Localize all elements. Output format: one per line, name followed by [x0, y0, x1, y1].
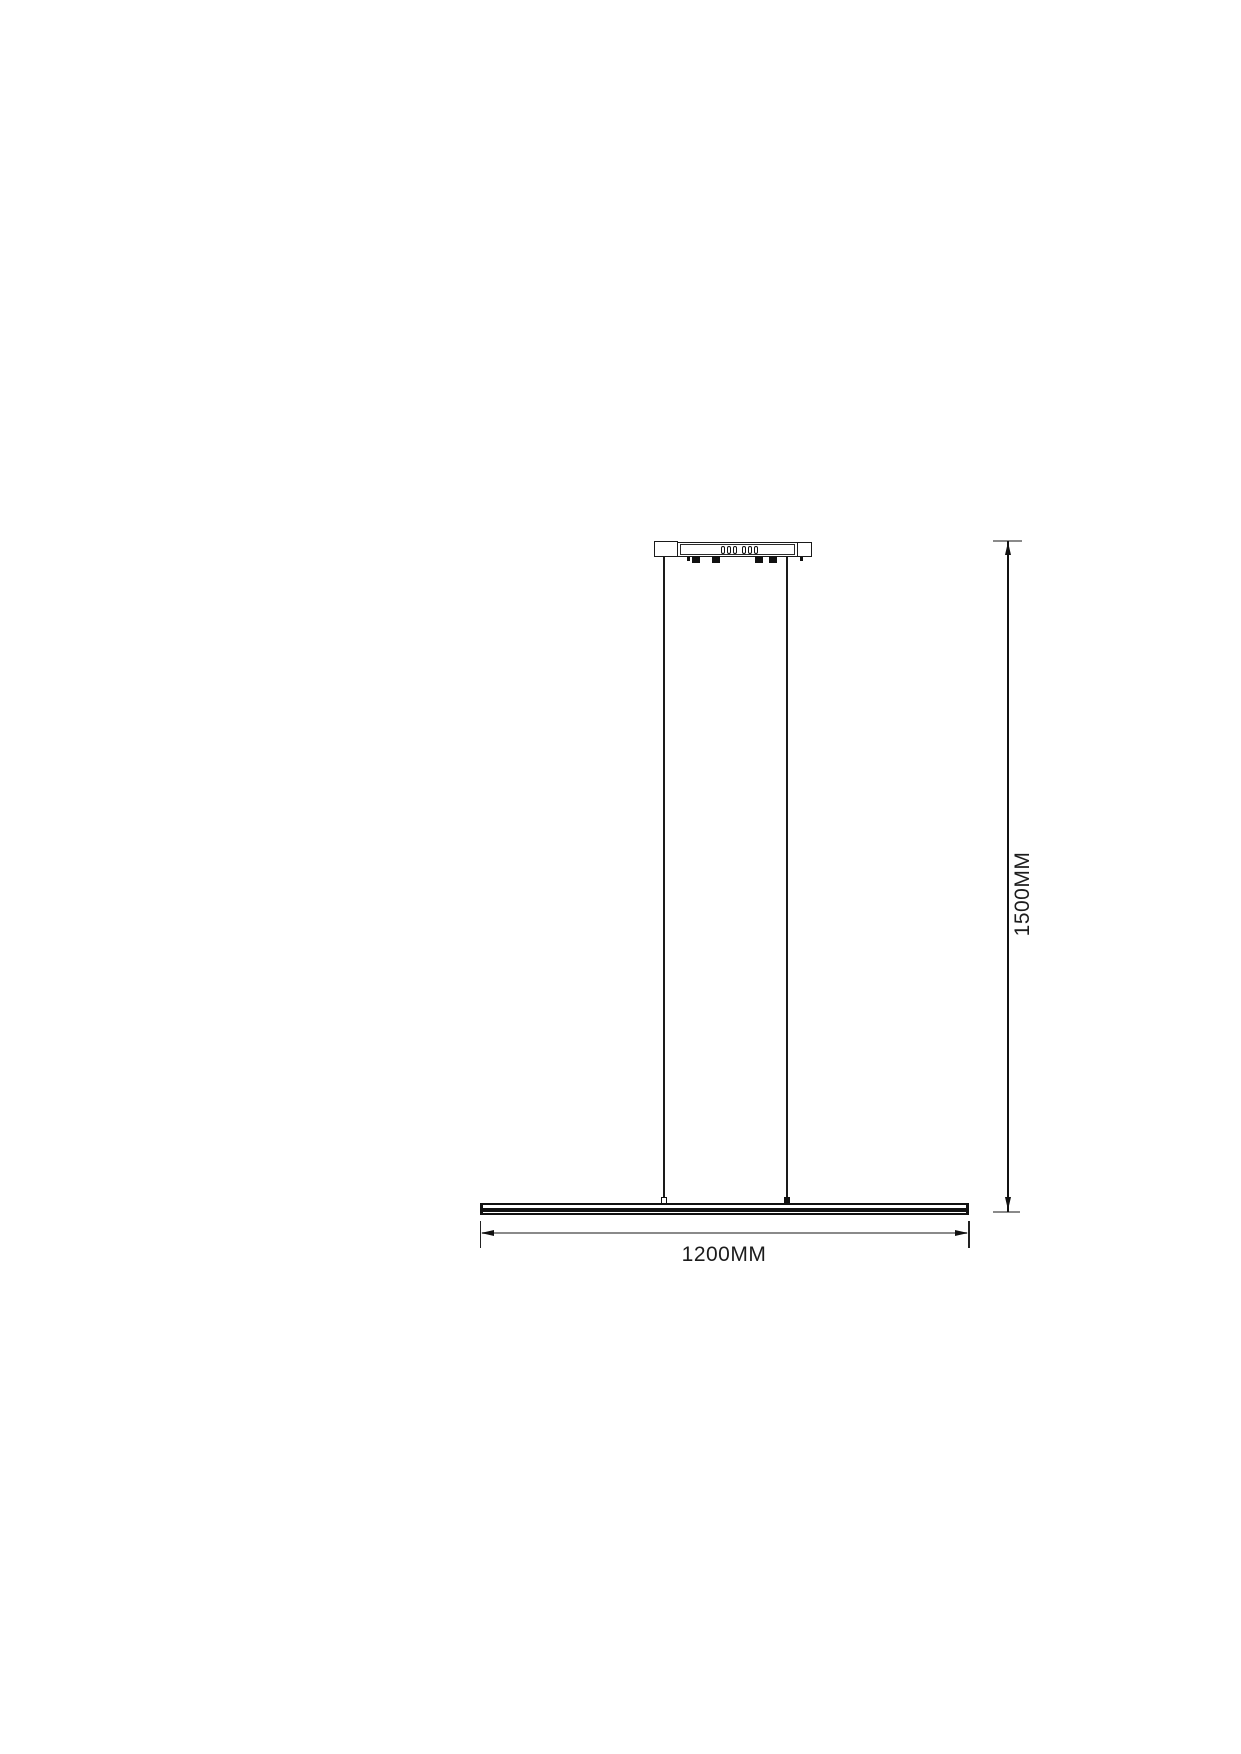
canopy-end-cap-left: [654, 541, 678, 557]
vent-hole: [748, 546, 752, 554]
canopy-end-cap-right: [797, 542, 812, 557]
arrow-up-icon: [1005, 542, 1011, 555]
height-dimension-line: [1007, 541, 1009, 1212]
vent-hole: [733, 546, 737, 554]
mounting-tab: [712, 556, 720, 563]
bar-led-band: [480, 1208, 969, 1212]
mounting-tab: [687, 557, 690, 561]
extension-line-right: [968, 1221, 970, 1248]
vent-hole: [727, 546, 731, 554]
canopy-body-panel: [680, 544, 795, 555]
arrow-down-icon: [1005, 1197, 1011, 1210]
bar-bottom-edge: [480, 1213, 969, 1215]
suspension-wire-left: [663, 557, 665, 1198]
bar-end-cap-left: [480, 1203, 484, 1215]
vent-hole: [742, 546, 746, 554]
arrow-right-icon: [955, 1230, 968, 1236]
vent-hole: [721, 546, 725, 554]
width-dimension-label: 1200MM: [624, 1243, 824, 1266]
bar-top-edge: [480, 1203, 969, 1205]
mounting-tab: [755, 556, 763, 563]
width-dimension-line: [482, 1232, 967, 1234]
vent-hole: [754, 546, 758, 554]
mounting-tab: [800, 557, 803, 561]
canopy-body: [677, 542, 798, 557]
drawing-canvas: 1200MM 1500MM: [0, 0, 1241, 1754]
height-dimension-label: 1500MM: [1011, 832, 1035, 956]
arrow-left-icon: [481, 1230, 494, 1236]
mounting-tab: [692, 556, 700, 563]
bar-end-cap-right: [966, 1203, 970, 1215]
mounting-tab: [769, 556, 777, 563]
suspension-wire-right: [786, 557, 788, 1198]
